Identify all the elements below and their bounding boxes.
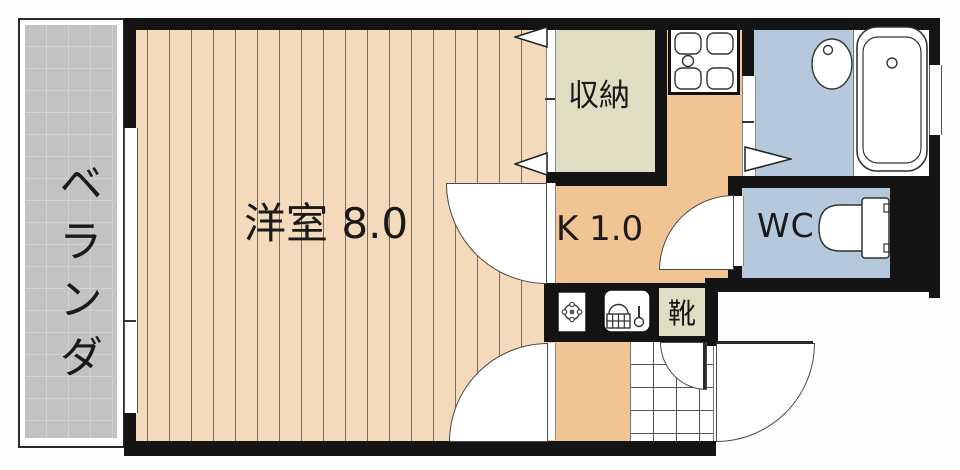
washroom-track-tick <box>742 121 754 123</box>
wall-left-upper <box>124 18 136 128</box>
closet-track-tick <box>545 98 555 100</box>
wall-right-upper <box>929 18 940 65</box>
closet-door-triangle-icon <box>514 152 548 176</box>
toilet-icon <box>816 196 892 260</box>
kitchen-sink-icon <box>602 288 652 334</box>
hall-floor <box>546 342 630 441</box>
window-right <box>929 65 942 135</box>
wall-wc-left-upper <box>728 176 742 196</box>
wall-closet-right <box>655 30 667 186</box>
entrance-door-swing-arc <box>716 343 815 442</box>
wall-left-lower <box>124 413 136 443</box>
folding-door-triangle-icon <box>744 146 792 172</box>
wall-wc-right <box>890 176 940 292</box>
floor-plan: ベランダ 靴 <box>0 0 960 470</box>
wall-bottom <box>124 441 716 456</box>
wall-wc-bottom <box>705 278 940 292</box>
wall-closet-bottom <box>546 172 667 186</box>
entrance-door-leaf <box>716 341 813 344</box>
closet-label: 収納 <box>568 81 630 112</box>
door-leaf <box>703 342 706 389</box>
closet-door-track <box>546 30 556 172</box>
shoe-cabinet-label: 靴 <box>668 292 696 332</box>
veranda-label: ベランダ <box>46 136 98 416</box>
kitchen-label: K 1.0 <box>556 212 643 246</box>
wc-label: WC <box>757 209 815 242</box>
bathtub-icon <box>855 25 929 173</box>
washbasin-icon <box>810 33 855 91</box>
washer-pan-icon <box>556 290 588 334</box>
closet-door-triangle-icon <box>514 26 548 48</box>
window-left-tick <box>124 320 136 322</box>
window-left <box>124 128 138 413</box>
shoe-cabinet: 靴 <box>659 288 705 336</box>
stove-icon <box>668 27 740 95</box>
main-room-label: 洋室 8.0 <box>244 203 408 245</box>
wall-kitchen-washroom <box>742 30 754 76</box>
